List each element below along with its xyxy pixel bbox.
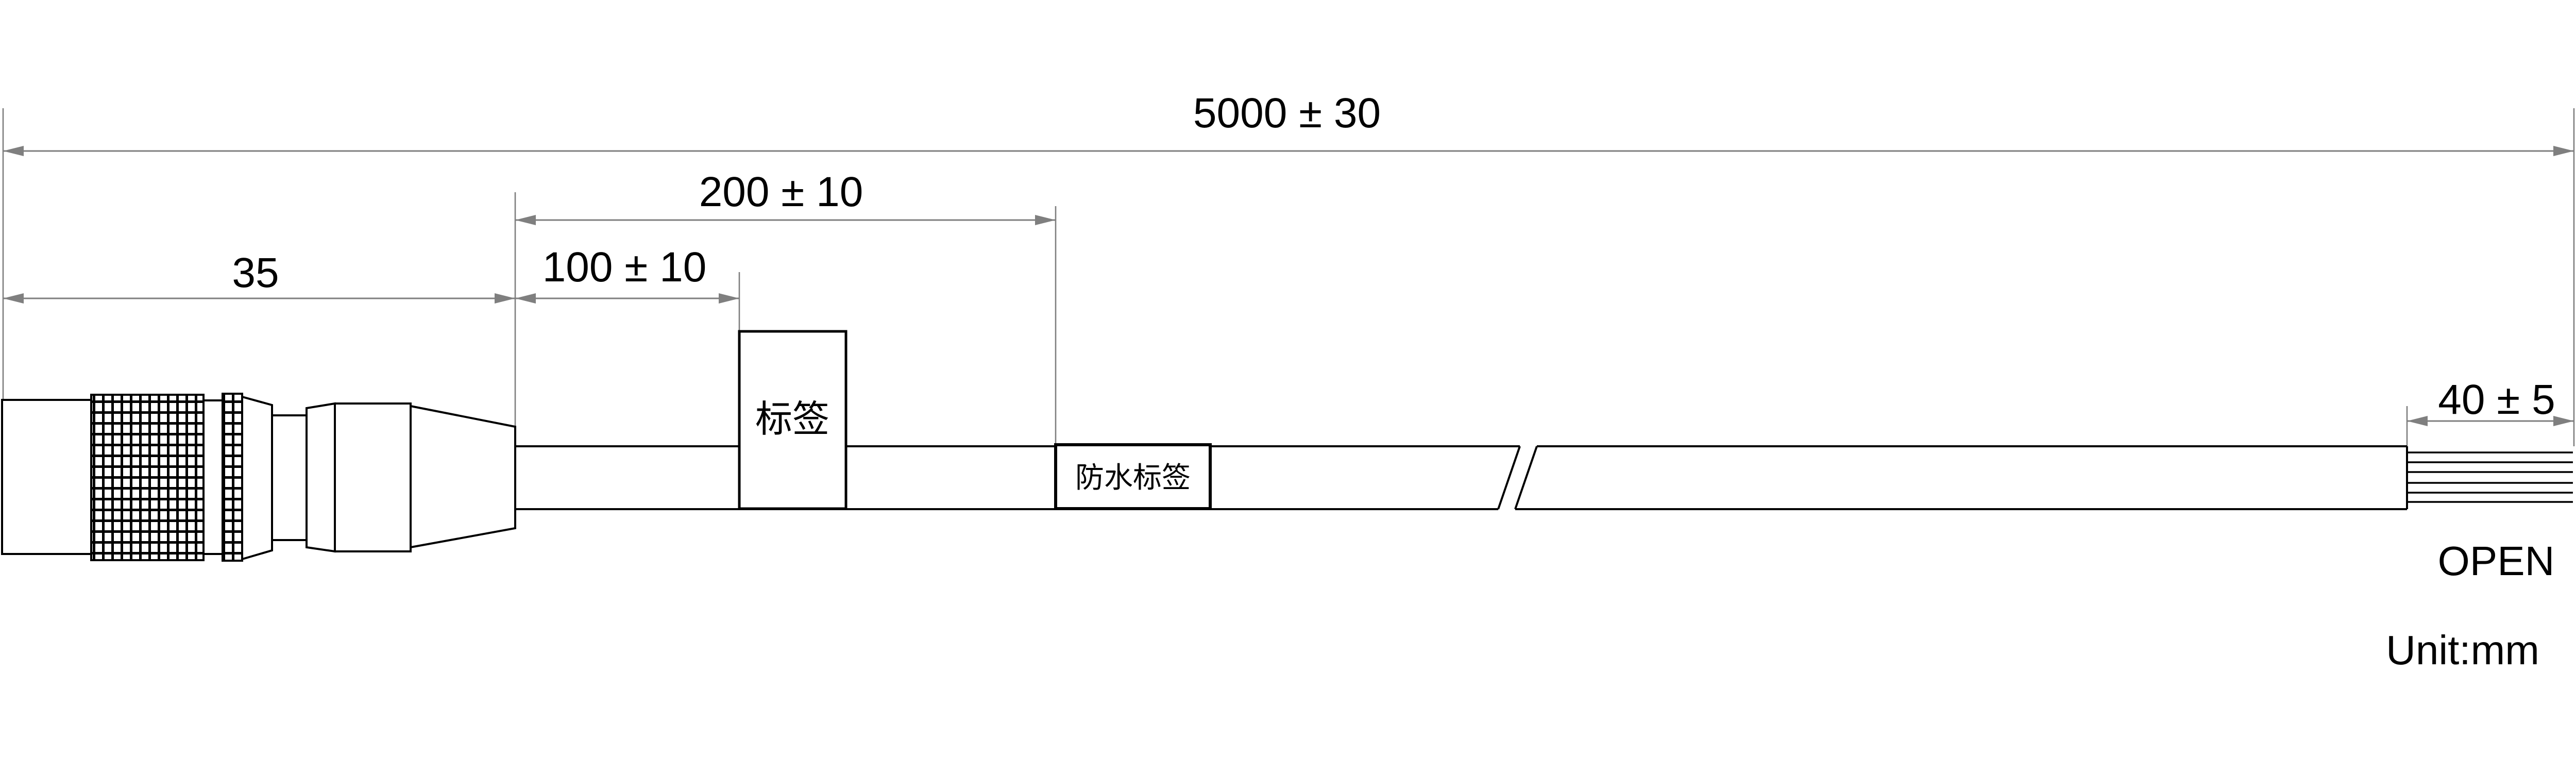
- arrow-right-icon: [1035, 215, 1056, 225]
- waterproof-label: 防水标签: [1056, 445, 1210, 509]
- arrow-left-icon: [3, 293, 24, 304]
- connector-shell-face: [307, 404, 335, 551]
- arrow-right-icon: [2553, 146, 2574, 156]
- connector-front-body: [2, 400, 91, 554]
- cable-break-line-right: [1515, 446, 1537, 509]
- connector: [2, 394, 515, 561]
- arrow-right-icon: [495, 293, 515, 304]
- arrow-right-icon: [719, 293, 739, 304]
- connector-shell-body: [335, 404, 411, 551]
- stripped-wires: [2407, 452, 2573, 502]
- dimension-annotations: 5000 ± 30 200 ± 10 35 100 ± 10 40 ± 5: [3, 90, 2574, 446]
- cable-drawing-canvas: 5000 ± 30 200 ± 10 35 100 ± 10 40 ± 5: [0, 0, 2576, 773]
- arrow-left-icon: [515, 215, 536, 225]
- label-tag: 标签: [739, 331, 846, 509]
- dim-text-label-position: 100 ± 10: [543, 244, 707, 291]
- label-tag-text: 标签: [755, 399, 829, 440]
- waterproof-label-text: 防水标签: [1075, 461, 1191, 494]
- connector-knurl-ring: [223, 394, 242, 561]
- arrow-left-icon: [515, 293, 536, 304]
- connector-collar: [242, 397, 272, 559]
- arrow-right-icon: [2553, 416, 2574, 426]
- cable-break-line-left: [1498, 446, 1520, 509]
- arrow-left-icon: [2407, 416, 2428, 426]
- dim-text-overall: 5000 ± 30: [1193, 90, 1381, 137]
- connector-boot-taper: [411, 406, 515, 547]
- dim-text-waterproof-position: 200 ± 10: [699, 169, 863, 215]
- dim-text-strip: 40 ± 5: [2438, 376, 2555, 423]
- arrow-left-icon: [3, 146, 24, 156]
- unit-note-text: Unit:mm: [2386, 627, 2539, 673]
- cable-assembly-drawing: 5000 ± 30 200 ± 10 35 100 ± 10 40 ± 5: [0, 0, 2576, 773]
- connector-knurl-barrel: [91, 395, 204, 560]
- open-end-text: OPEN: [2438, 538, 2555, 584]
- dim-text-connector: 35: [232, 249, 279, 296]
